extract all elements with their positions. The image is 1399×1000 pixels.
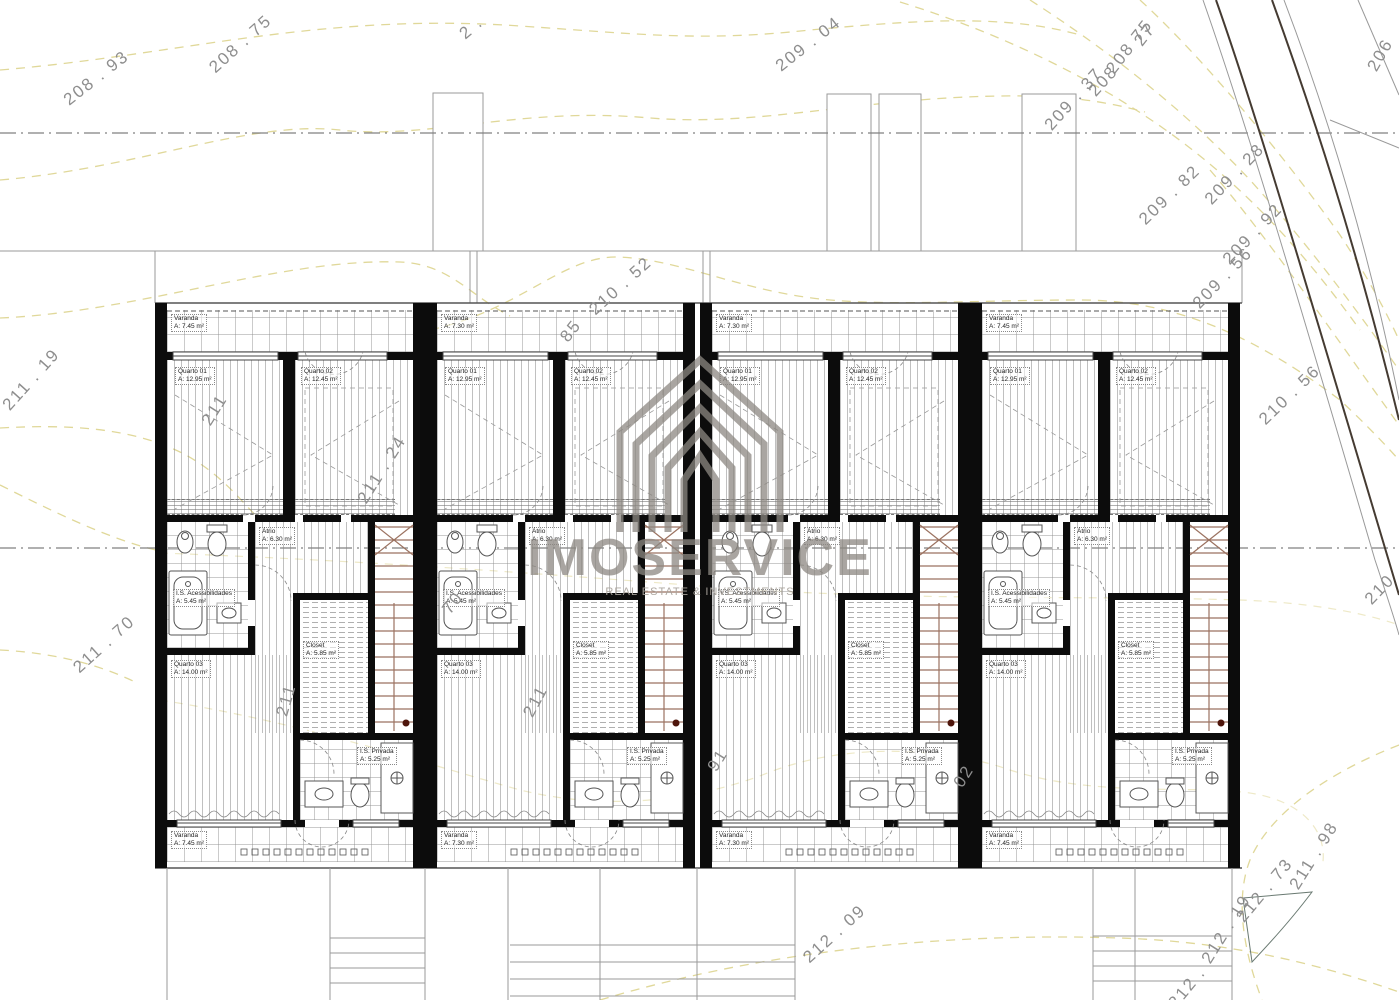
elevation-label: 70 [438,588,468,618]
site-plan: VarandaA: 7.45 m²Quarto 01A: 12.95 m²Qua… [0,0,1399,1000]
elevation-label: 210 . 52 [585,253,656,320]
elevation-label: 210 . 56 [1255,361,1325,429]
elevation-label: 85 [556,316,586,346]
elevation-label: 208 . 75 [205,11,276,78]
elevation-label: 211 . 98 [1286,818,1343,893]
elevation-label: 91 [704,745,733,775]
elevation-label: 211 [198,391,233,430]
contour-labels: 208 . 93208 . 752 .209 . 04209 . 3720820… [0,0,1399,1000]
elevation-label: 210 [1361,570,1399,609]
elevation-label: 212 . [1164,963,1210,1000]
elevation-label: 211 . 19 [0,345,64,415]
elevation-label: 212 . 73 [1232,854,1297,926]
elevation-label: 211 [519,682,552,721]
elevation-label: 209 . 82 [1135,161,1205,229]
elevation-label: 209 . 28 [1201,139,1269,209]
elevation-label: 208 . 93 [60,46,133,109]
elevation-label: 212 . 09 [799,901,870,968]
elevation-label: 211 . 24 [354,432,411,507]
elevation-label: 211 [272,681,300,718]
elevation-label: 211 . 70 [69,612,139,678]
elevation-label: 209 . 04 [772,12,845,75]
elevation-label: 206 [1363,35,1398,75]
elevation-label: 2 . [456,12,488,43]
elevation-label: 02 [950,761,979,791]
